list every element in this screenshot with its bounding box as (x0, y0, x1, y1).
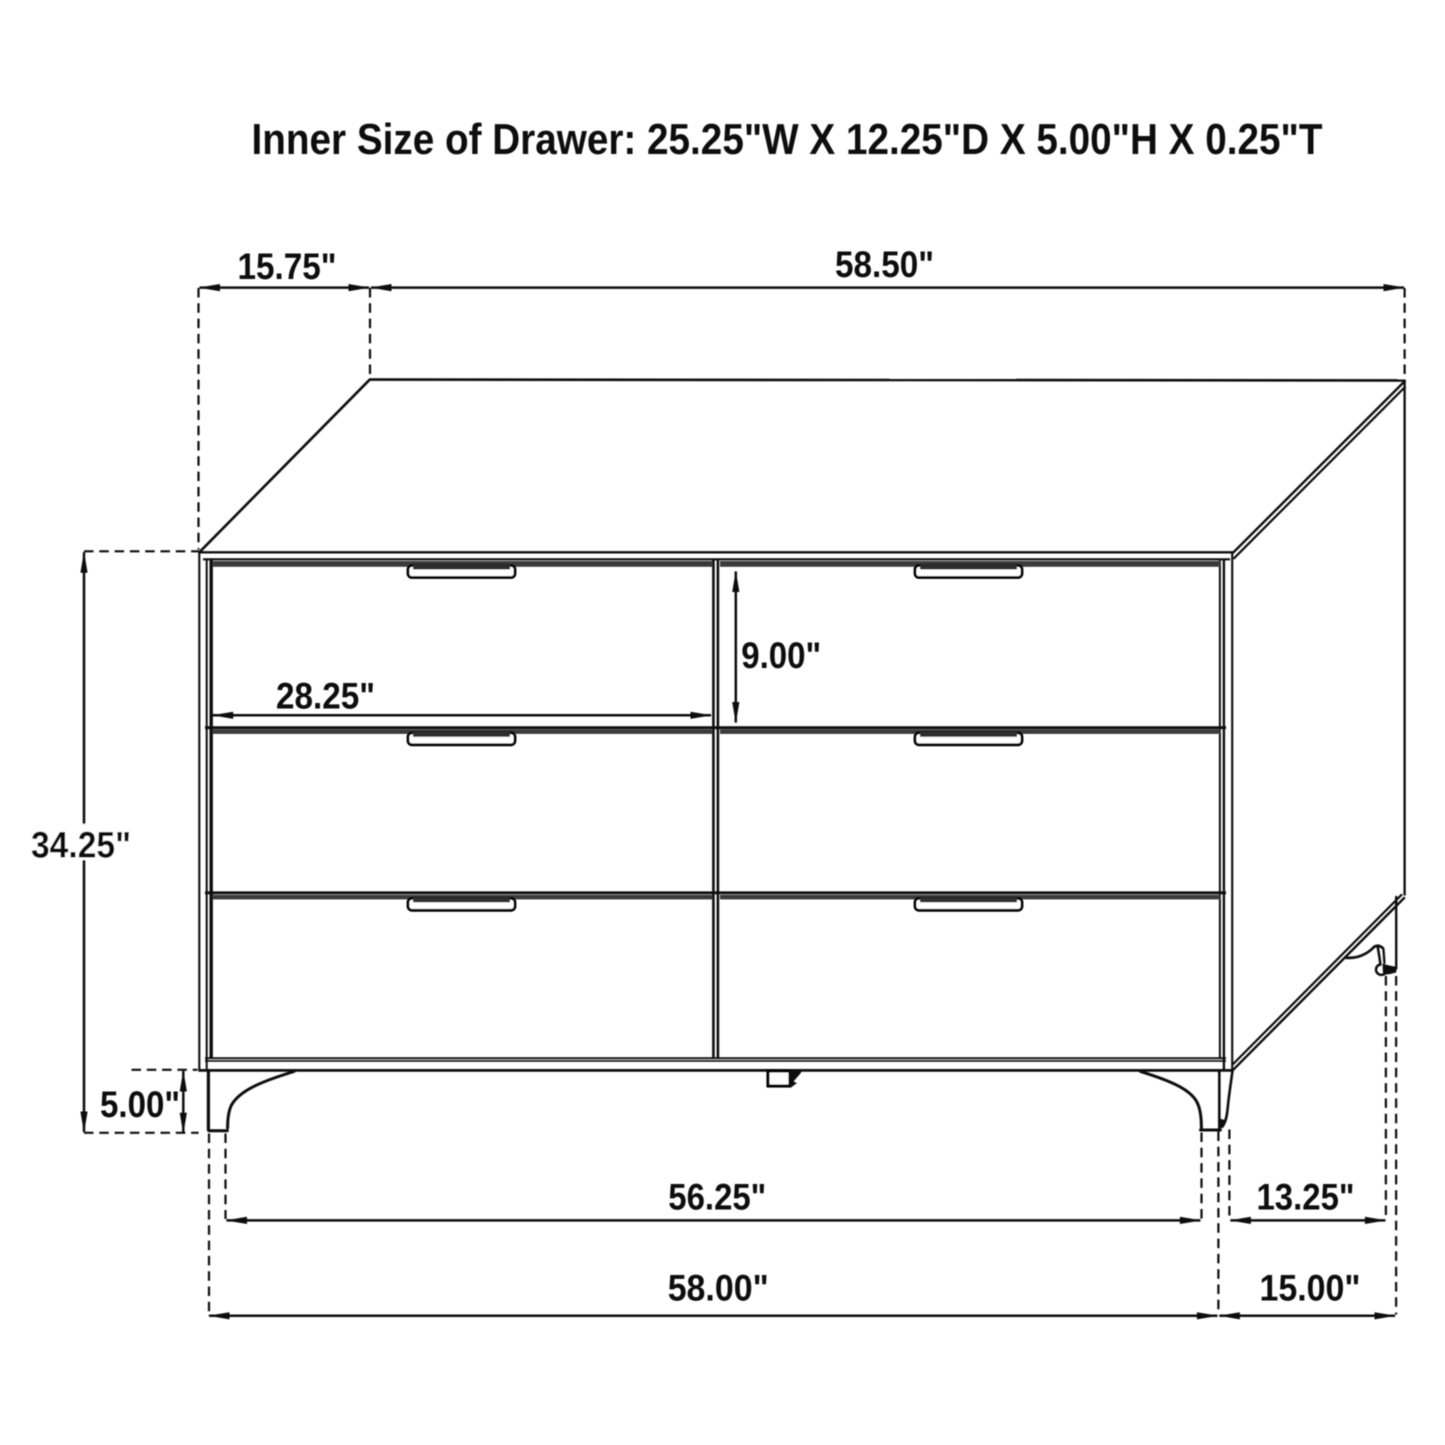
svg-text:56.25": 56.25" (668, 1177, 766, 1218)
svg-text:28.25": 28.25" (276, 675, 375, 716)
svg-text:58.00": 58.00" (668, 1268, 769, 1309)
svg-text:34.25": 34.25" (31, 825, 131, 866)
svg-text:15.00": 15.00" (1260, 1268, 1361, 1309)
svg-text:5.00": 5.00" (100, 1084, 180, 1125)
svg-text:Inner Size of Drawer: 25.25"W: Inner Size of Drawer: 25.25"W X 12.25"D … (252, 116, 1323, 164)
svg-text:13.25": 13.25" (1257, 1177, 1355, 1218)
svg-text:9.00": 9.00" (741, 635, 821, 676)
svg-text:58.50": 58.50" (835, 244, 934, 285)
svg-text:15.75": 15.75" (238, 246, 337, 287)
